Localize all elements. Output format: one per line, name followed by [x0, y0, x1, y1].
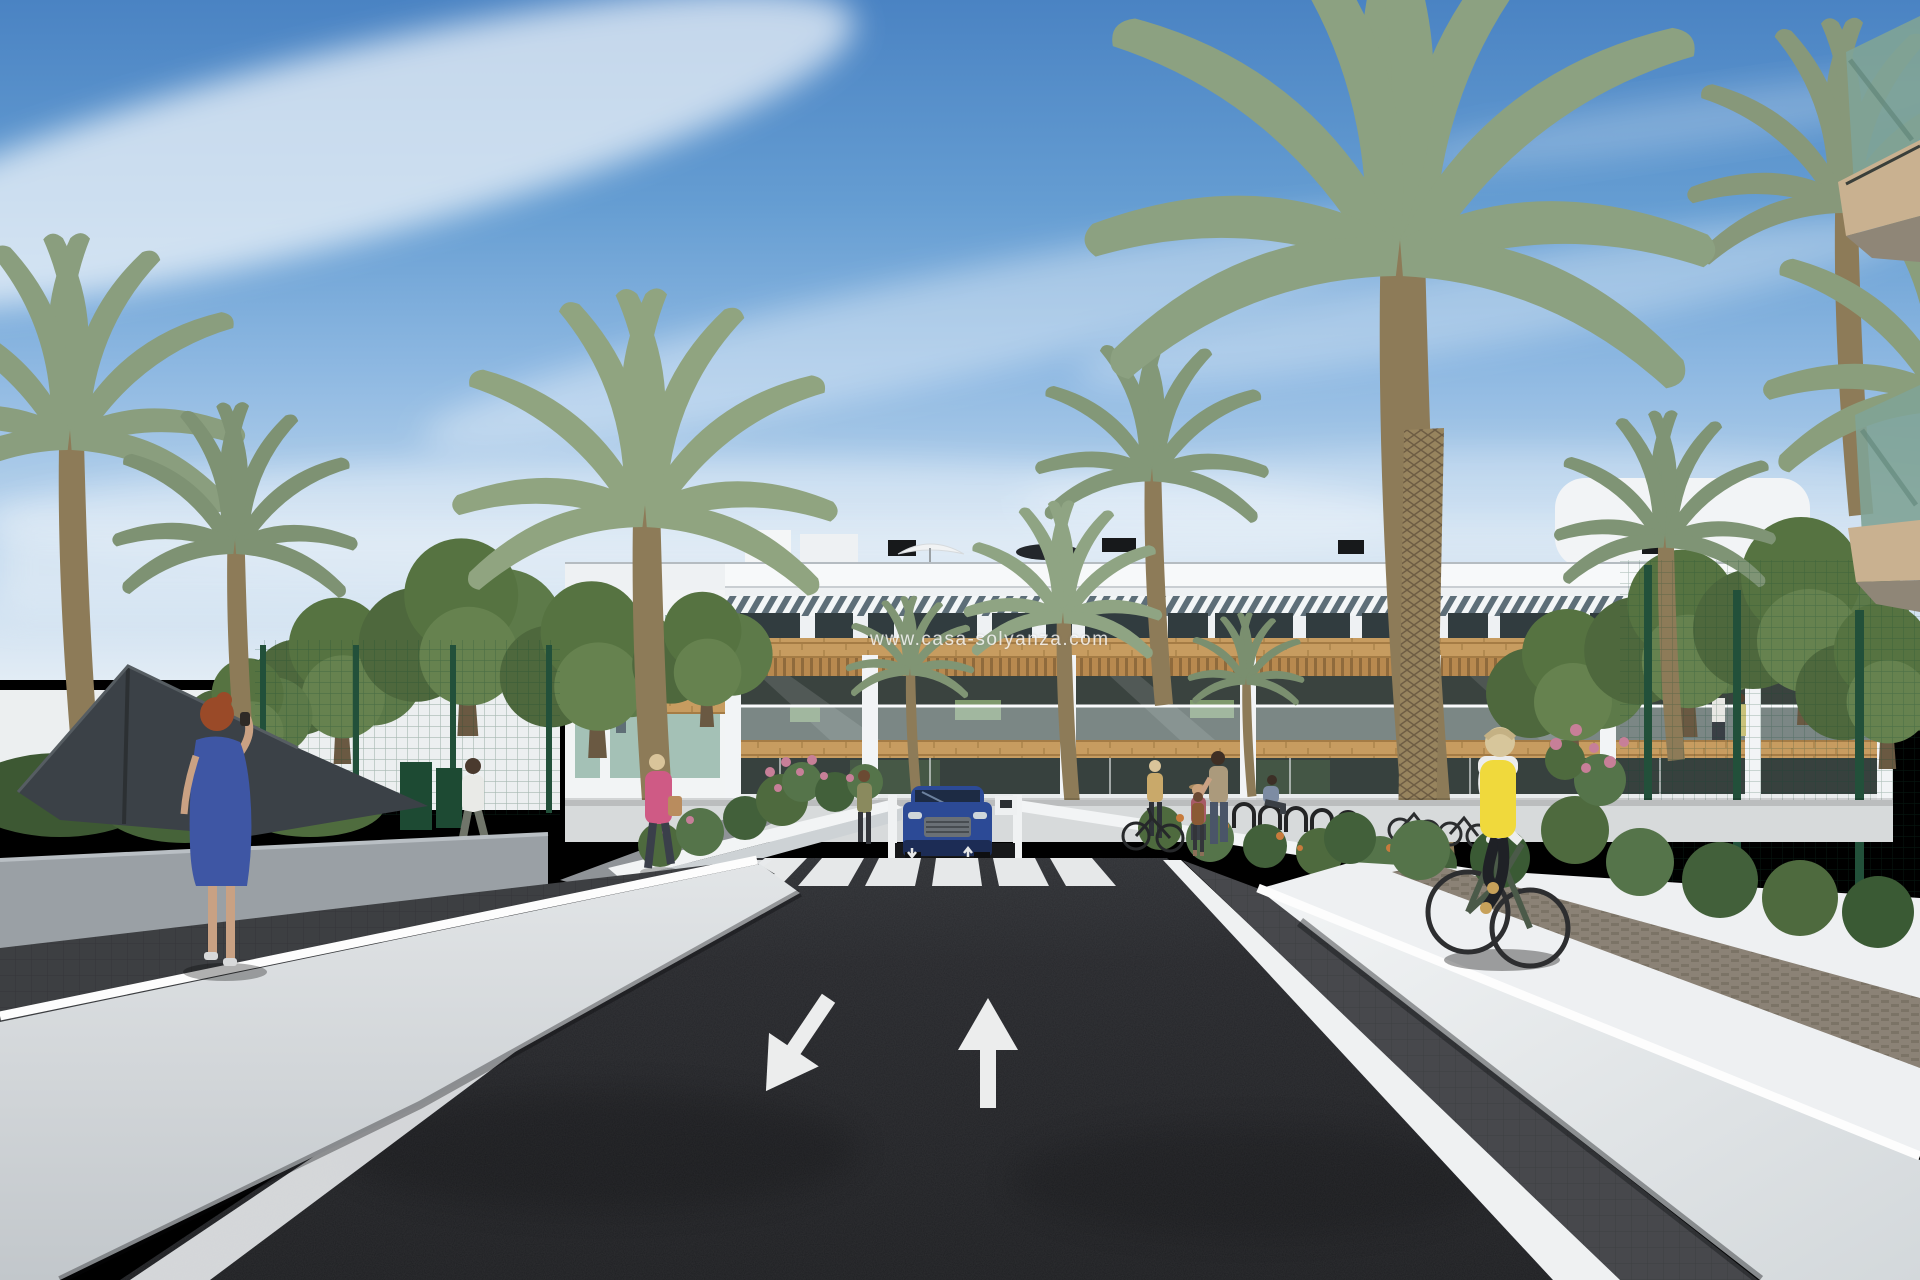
phone	[240, 712, 250, 726]
blue-dress	[190, 736, 252, 886]
yellow-vest	[1480, 760, 1516, 838]
handbag	[668, 796, 682, 816]
watermark-text: www.casa-solyanza.com	[870, 629, 1130, 651]
balcony-slab	[1848, 520, 1920, 582]
roof-vent	[1102, 538, 1136, 552]
roof-vent	[1338, 540, 1364, 554]
red-hair	[200, 697, 234, 731]
render-canvas: www.casa-solyanza.com	[0, 0, 1920, 1280]
